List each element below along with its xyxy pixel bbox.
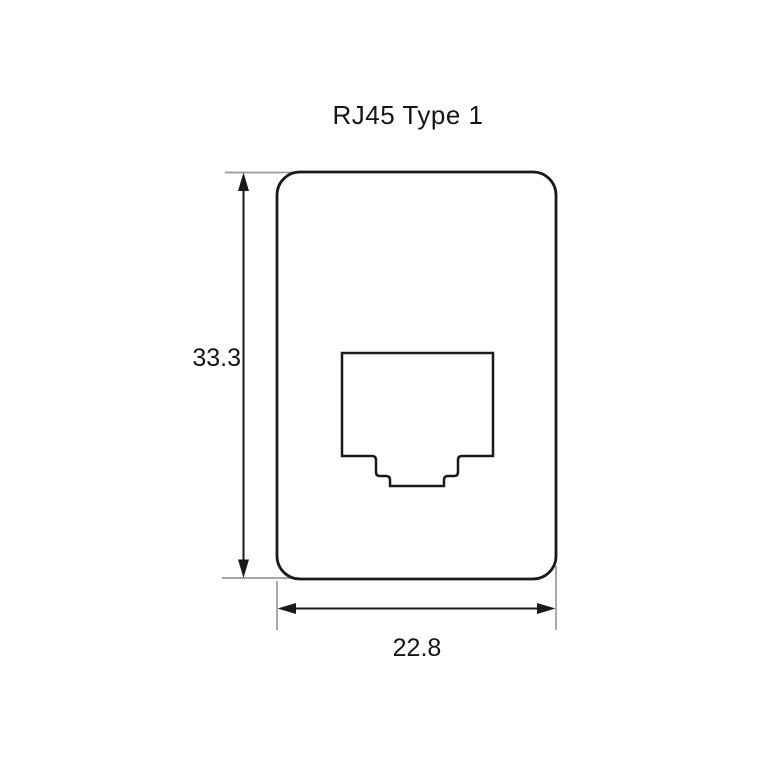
arrow-down-icon: [238, 560, 249, 579]
height-dimension: 33.3: [192, 173, 249, 579]
arrow-up-icon: [238, 173, 249, 192]
arrow-left-icon: [278, 603, 297, 614]
rj45-dimension-drawing: 33.3 22.8 RJ45 Type 1: [0, 0, 767, 767]
width-dimension-label: 22.8: [393, 634, 442, 662]
width-dimension: 22.8: [278, 603, 556, 662]
height-dimension-label: 33.3: [192, 344, 241, 372]
drawing-title: RJ45 Type 1: [332, 100, 483, 130]
technical-drawing-canvas: 33.3 22.8 RJ45 Type 1: [0, 0, 767, 767]
arrow-right-icon: [537, 603, 556, 614]
